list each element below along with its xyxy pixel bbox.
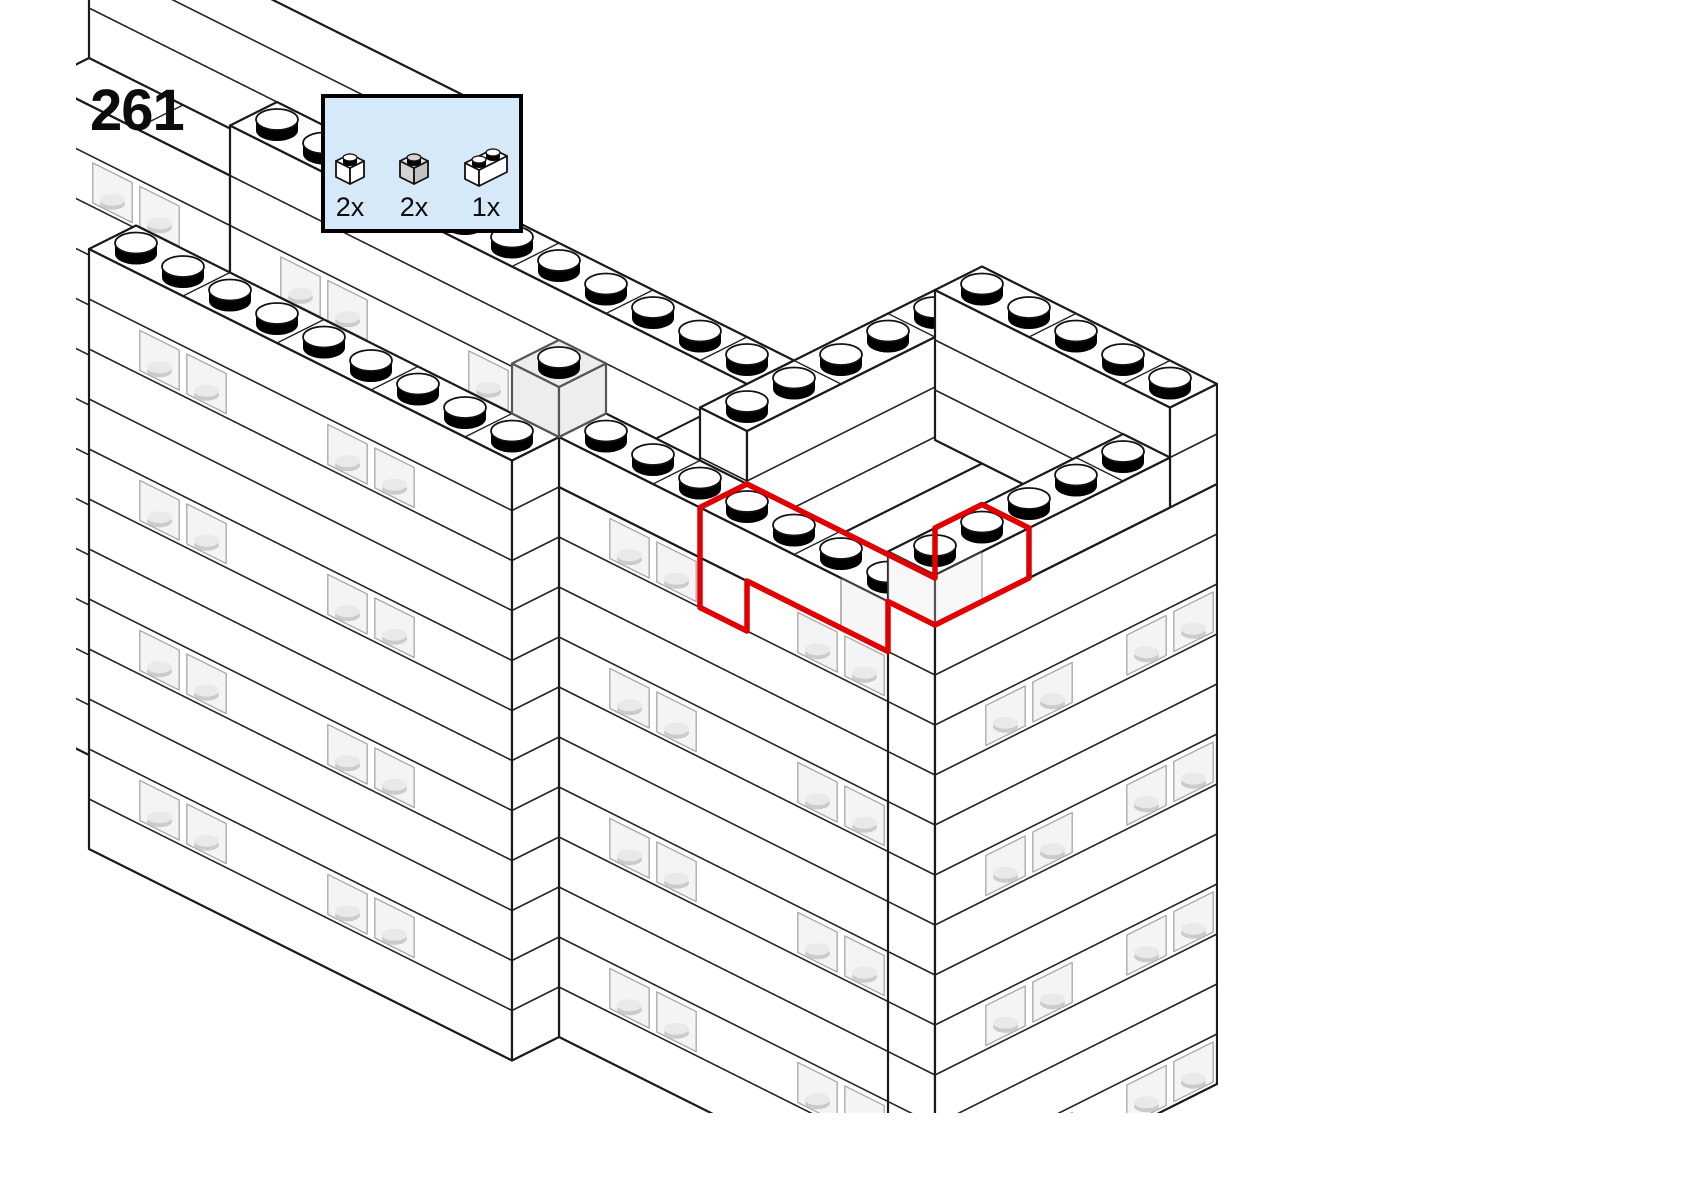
part-item: 2x [389,143,439,221]
parts-callout: 2x 2x 1x [321,94,523,233]
brick-1x1-white-icon [325,143,375,193]
brick-1x1-transparent-icon [389,143,439,193]
step-number: 261 [90,82,184,140]
part-item: 1x [453,141,519,221]
building-illustration [0,0,1684,1192]
part-quantity: 2x [400,194,429,221]
instruction-page: 261 2x 2x 1x [0,0,1684,1192]
part-item: 2x [325,143,375,221]
part-quantity: 2x [336,194,365,221]
part-quantity: 1x [472,194,501,221]
brick-1x2-white-icon [453,141,519,193]
